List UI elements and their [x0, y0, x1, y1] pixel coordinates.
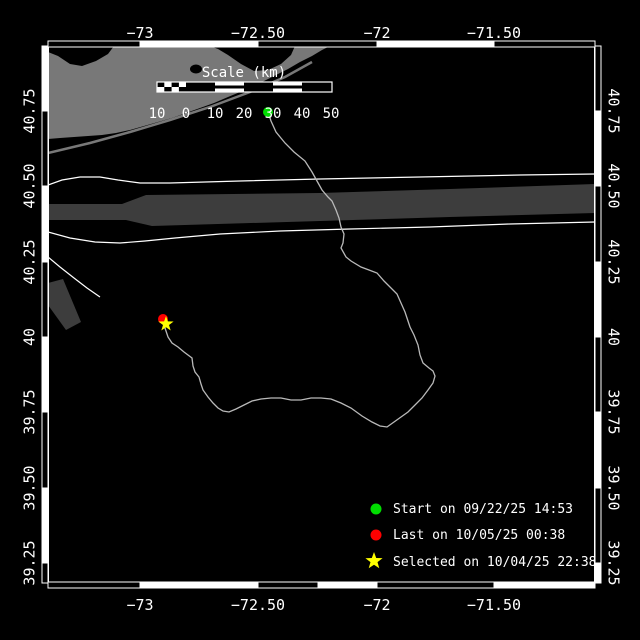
- legend-last-label: Last on 10/05/25 00:38: [393, 528, 565, 543]
- axis-tick-label: 39.25: [605, 540, 623, 585]
- axis-tick-label: −73: [126, 596, 153, 614]
- axis-tick-label: 39.75: [21, 389, 39, 434]
- scale-tick: 40: [294, 106, 311, 122]
- scale-tick: 30: [265, 106, 282, 122]
- legend-start-label: Start on 09/22/25 14:53: [393, 502, 573, 517]
- axis-tick-label: 40.25: [21, 239, 39, 284]
- scale-tick: 10: [207, 106, 224, 122]
- legend-item-start: Start on 09/22/25 14:53: [371, 502, 574, 517]
- frame-zebra-right: [595, 46, 601, 583]
- axis-tick-label: 39.50: [21, 465, 39, 510]
- axis-tick-label: 40: [21, 328, 39, 346]
- axis-tick-label: −71.50: [467, 24, 521, 42]
- axis-tick-label: −72: [363, 596, 390, 614]
- axis-tick-label: −71.50: [467, 596, 521, 614]
- axis-tick-label: 40.50: [605, 163, 623, 208]
- axis-tick-label: 40.50: [21, 163, 39, 208]
- axis-tick-label: 40.75: [605, 88, 623, 133]
- scale-tick: 0: [182, 106, 190, 122]
- frame-zebra-left: [42, 46, 48, 583]
- axis-tick-label: 40: [605, 328, 623, 346]
- bay-small: [190, 65, 202, 74]
- legend-selected-label: Selected on 10/04/25 22:38: [393, 555, 597, 570]
- axis-tick-label: 39.25: [21, 540, 39, 585]
- axis-tick-label: −73: [126, 24, 153, 42]
- axis-tick-label: −72.50: [231, 596, 285, 614]
- legend-last-icon: [371, 530, 382, 541]
- axis-tick-label: 39.50: [605, 465, 623, 510]
- axis-tick-label: −72: [363, 24, 390, 42]
- legend-start-icon: [371, 504, 382, 515]
- legend: Start on 09/22/25 14:53 Last on 10/05/25…: [365, 502, 596, 570]
- map-canvas[interactable]: Scale (km) 10 0 10 20 30 40 50: [0, 0, 640, 640]
- scale-tick: 50: [323, 106, 340, 122]
- axis-tick-label: −72.50: [231, 24, 285, 42]
- axis-tick-label: 39.75: [605, 389, 623, 434]
- scale-tick: 20: [236, 106, 253, 122]
- scale-bar-title: Scale (km): [202, 65, 286, 81]
- axis-tick-label: 40.75: [21, 88, 39, 133]
- legend-item-selected: Selected on 10/04/25 22:38: [365, 552, 596, 570]
- scale-tick: 10: [149, 106, 166, 122]
- frame-zebra-bottom: [48, 582, 595, 588]
- legend-item-last: Last on 10/05/25 00:38: [371, 528, 566, 543]
- axis-tick-label: 40.25: [605, 239, 623, 284]
